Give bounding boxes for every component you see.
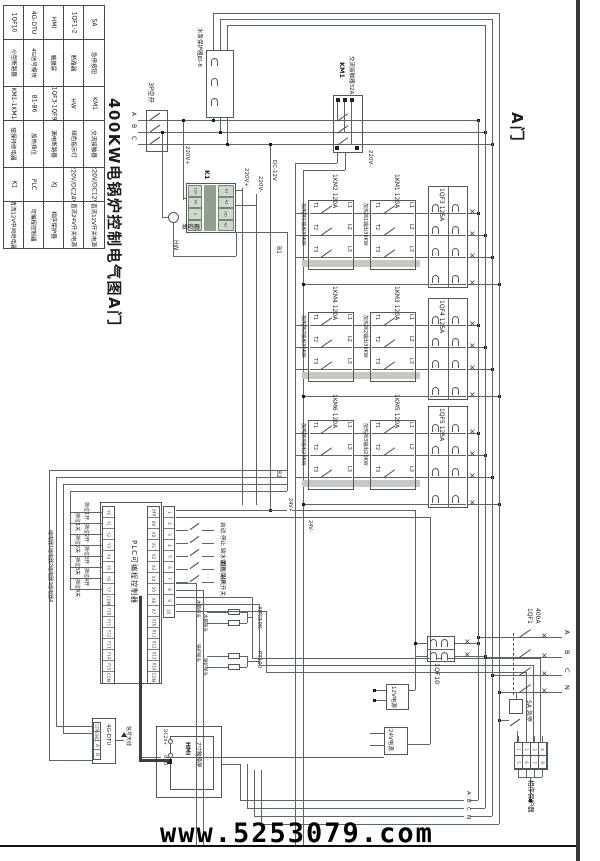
plc-output-label: 挡位4开 <box>83 568 88 586</box>
sheet-bottom-border <box>0 845 577 847</box>
breaker-pole-icon <box>452 468 459 476</box>
breaker-pole-icon <box>452 424 459 432</box>
xj-cell: 6 <box>523 756 531 769</box>
junction <box>302 283 305 286</box>
terminal-cell: Y12 <box>103 628 114 639</box>
wire <box>202 530 214 531</box>
wire <box>344 102 345 132</box>
breaker-pole-icon <box>432 338 439 346</box>
terminal-cell: X14 <box>148 661 159 672</box>
wire <box>310 369 352 370</box>
breaker-name: 1QF4 125A <box>438 300 444 333</box>
terminal <box>355 146 359 150</box>
breaker-pole-icon <box>452 387 459 395</box>
plc-right-terminal-strip: 24V0VX0X1X2X3X4X5X6X7X10X11X12X13X14COM <box>147 506 160 684</box>
wire <box>247 808 485 809</box>
terminal-label: T1 <box>312 314 317 320</box>
wire <box>176 611 266 612</box>
divider <box>427 649 455 650</box>
legend-cell: SA <box>84 6 104 40</box>
drawing-title: 400KW电锅炉控制电气图A门 <box>106 98 121 327</box>
wire <box>430 504 466 505</box>
wire <box>430 369 466 370</box>
terminal <box>336 98 340 102</box>
wire <box>56 726 92 727</box>
contactor-name: 1KM4 120A <box>331 286 337 320</box>
x-mark: × <box>469 208 476 216</box>
wire <box>207 612 228 613</box>
legend-cell: 急停按钮 <box>84 40 104 87</box>
terminal-cell: X0 <box>148 529 159 540</box>
x-mark: × <box>469 450 476 458</box>
legend-cell: 220V/DC24V <box>64 168 83 202</box>
legend-cell: 绿色指示灯 <box>64 121 83 168</box>
terminal-label: L2 <box>408 336 413 342</box>
x-mark: × <box>469 428 476 436</box>
k1-label: K1 <box>204 170 211 180</box>
plc-left-terminal-strip: Y0Y1Y2Y3Y4Y5Y6Y7COMY10Y11Y12Y13Y14Y15COM <box>102 506 115 684</box>
divider <box>448 298 449 400</box>
wire <box>372 369 414 370</box>
k1-pin-cell: A2 <box>218 197 234 209</box>
legend-cell: HMI <box>44 6 63 40</box>
heater-stage-label: 加热挡2输出30KW <box>300 315 305 358</box>
wire <box>213 13 214 50</box>
wire <box>207 656 228 657</box>
breaker-pole-icon <box>432 468 439 476</box>
terminal-cell: Y10 <box>103 606 114 617</box>
terminal-cell: COM <box>148 672 159 683</box>
breaker-pole-icon <box>211 58 218 66</box>
wire <box>242 188 243 505</box>
legend-column: 4G-DTU4G信号模块B1-B6加热挡位PLC可编程控制器 <box>24 6 44 248</box>
switch-glyph <box>190 523 200 530</box>
wire <box>227 25 485 26</box>
terminal-label: L2 <box>408 224 413 230</box>
terminal-label: T3 <box>312 246 317 252</box>
legend-cell: 直流12V开关电源 <box>84 202 104 248</box>
wire <box>240 656 247 657</box>
wire <box>138 132 485 133</box>
wire <box>240 800 478 801</box>
junction <box>212 119 215 122</box>
legend-cell: 小型断路器 <box>4 40 23 87</box>
terminal-label: T3 <box>312 358 317 364</box>
terminal-label: L3 <box>408 246 413 252</box>
legend-cell: 1QF1-2 <box>64 6 83 40</box>
x-mark: × <box>469 472 476 480</box>
terminal <box>350 98 354 102</box>
wire <box>351 102 352 144</box>
legend-column: HMI触摸屏1QF3-1QF9漏电断路器XJ相序保护器 <box>44 6 64 248</box>
junction <box>302 395 305 398</box>
bus-tag: N <box>465 815 471 819</box>
breaker-pole-icon <box>211 98 218 106</box>
wire <box>303 170 345 171</box>
terminal-cell: 0V <box>148 518 159 529</box>
wire-label: 220V- <box>367 150 373 166</box>
terminal-label: L3 <box>346 358 351 364</box>
legend-cell: 交流接触器 <box>84 121 104 168</box>
x-mark: × <box>469 342 476 350</box>
terminal-label: L1 <box>408 202 413 208</box>
terminal-cell: 24V <box>148 507 159 518</box>
wire <box>485 657 562 658</box>
legend-cell: 220V/DC12V <box>84 168 104 202</box>
wire <box>430 325 466 326</box>
km1-label: KM1 <box>339 62 346 78</box>
wire <box>372 235 414 236</box>
breaker-link-dashed <box>513 633 514 695</box>
k1-pin-cell: S <box>188 208 202 220</box>
breaker-pole-icon <box>432 446 439 454</box>
buzzer-icon <box>168 212 179 223</box>
wire <box>310 477 352 478</box>
heater-stage-label: 加热挡1输出30KW <box>300 203 305 246</box>
wire <box>416 235 428 236</box>
wire-label: 220V+ <box>184 146 190 165</box>
wire <box>176 530 188 531</box>
breaker-name: 1QF5 125A <box>438 408 444 441</box>
junction <box>373 699 376 702</box>
wire <box>259 604 260 665</box>
terminal-label: T2 <box>374 336 379 342</box>
terminal <box>335 146 339 150</box>
wire <box>202 556 214 557</box>
terminal-label: L1 <box>346 202 351 208</box>
wire <box>516 692 517 699</box>
wire <box>207 667 228 668</box>
x-mark: × <box>469 499 476 507</box>
terminal-label: T2 <box>374 444 379 450</box>
junction <box>373 689 376 692</box>
wire <box>176 510 415 511</box>
x-mark: × <box>469 252 476 260</box>
wire <box>345 153 346 170</box>
wire <box>303 284 428 285</box>
junction <box>269 143 272 146</box>
x-mark: × <box>469 279 476 287</box>
schematic-sheet: 1QF10小型断路器1KM1-1KM14磁保持继电器K1直流12V中间继电器 4… <box>0 0 600 861</box>
phase-label: A <box>564 630 571 634</box>
wire <box>372 213 414 214</box>
breaker-pole-icon <box>432 204 439 212</box>
heater-stage-label: 加热挡2输出30KW <box>362 315 367 358</box>
breaker-pole-icon <box>452 446 459 454</box>
wire-label: 220V+ <box>243 168 249 187</box>
terminal-label: T1 <box>312 202 317 208</box>
wire <box>542 770 543 777</box>
wire <box>354 257 370 258</box>
x-mark: × <box>469 320 476 328</box>
terminal-label: L2 <box>346 336 351 342</box>
wire <box>492 675 562 676</box>
terminal-cell: COM <box>103 672 114 683</box>
wire <box>430 455 466 456</box>
wire <box>236 232 287 233</box>
wire <box>430 284 466 285</box>
legend-cell: 4G信号模块 <box>24 40 43 87</box>
wire <box>116 740 124 741</box>
wire <box>430 396 466 397</box>
terminal-cell: X11 <box>148 628 159 639</box>
terminal-cell: 5 <box>164 551 174 562</box>
bus-tag: C <box>465 807 471 811</box>
wire <box>287 232 288 491</box>
switch-glyph <box>190 549 200 556</box>
wire <box>138 120 478 121</box>
wire <box>63 484 287 485</box>
legend-cell: K1 <box>4 168 23 202</box>
hmi-box <box>170 736 214 790</box>
terminal-cell: 1 <box>164 507 174 518</box>
wire-label: DC-12V <box>271 160 277 181</box>
wire <box>207 623 228 624</box>
legend-column: SA急停按钮KM1交流接触器220V/DC12V直流12V开关电源 <box>84 6 104 248</box>
wire <box>310 213 352 214</box>
wire <box>370 733 384 734</box>
terminal-cell: X2 <box>148 551 159 562</box>
switch-glyph <box>190 536 200 543</box>
wire <box>416 369 428 370</box>
wire <box>416 477 428 478</box>
sensor-icon <box>228 653 240 659</box>
wire <box>408 744 430 745</box>
terminal-label: L3 <box>346 466 351 472</box>
relay-label: 继电器4 <box>47 584 52 602</box>
wire <box>266 611 267 672</box>
x-mark: × <box>469 364 476 372</box>
wire <box>49 470 50 760</box>
wire <box>295 369 308 370</box>
terminal-label: T2 <box>374 224 379 230</box>
wire <box>303 504 428 505</box>
terminal-cell: 6 <box>164 562 174 573</box>
legend-cell: 1QF10 <box>4 6 23 40</box>
heater-stage-label: 加热挡1输出30KW <box>362 203 367 246</box>
door-label: A门 <box>509 112 524 143</box>
terminal-cell: X7 <box>148 606 159 617</box>
legend-cell: KM1 <box>84 87 104 121</box>
terminal-cell: 7 <box>164 573 174 584</box>
wire <box>176 604 259 605</box>
wire <box>176 597 252 598</box>
wire <box>518 770 519 777</box>
wire <box>534 770 535 777</box>
terminal-cell: GND <box>94 732 100 741</box>
plc-output-label: 挡位2关 <box>74 535 79 553</box>
breaker-3p-label: 3P空开 <box>148 82 155 103</box>
x-mark: × <box>469 391 476 399</box>
plc-output-label: 挡位3关 <box>74 557 79 575</box>
breaker-pole-icon <box>452 248 459 256</box>
plc-output-label: 挡位3开 <box>83 546 88 564</box>
wire <box>240 623 247 624</box>
terminal-label: L2 <box>408 444 413 450</box>
xj-cell: 1 <box>515 743 523 756</box>
k1-pin-cell: 12V <box>188 185 202 197</box>
contactor-name: 1KM6 120A <box>331 394 337 428</box>
wire <box>247 764 248 808</box>
wire <box>240 612 247 613</box>
main-breaker-rating: 400A <box>534 608 540 624</box>
wire <box>295 477 308 478</box>
contactor-name: 1KM5 120A <box>393 394 399 428</box>
wire <box>372 325 414 326</box>
contactor-name: 1KM1 120A <box>393 174 399 208</box>
antenna-label: 信号天线 <box>125 726 130 746</box>
k1-pin-column: A1A2NONC <box>218 185 234 231</box>
plc-output-label: 挡位1开 <box>83 502 88 520</box>
wire <box>220 19 221 50</box>
breaker-pole-icon <box>441 652 448 660</box>
bus-tag: B <box>465 799 471 803</box>
main-breaker-name: 1QF1 <box>526 608 532 624</box>
wire <box>430 235 466 236</box>
wire <box>138 144 492 145</box>
wire <box>310 257 352 258</box>
plc-output-label: 挡位1关 <box>74 513 79 531</box>
junction <box>182 119 185 122</box>
aux-terminal-strip: 12345678910 <box>163 506 175 618</box>
legend-cell: 可编程控制器 <box>24 202 43 248</box>
breaker-pole-icon <box>452 275 459 283</box>
dtu-label: 4G-DTU <box>105 724 111 745</box>
relay-label: 继电器2 <box>47 548 52 566</box>
legend-cell: 1QF3-1QF9 <box>44 87 63 121</box>
legend-cell: 漏电断路器 <box>44 121 63 168</box>
wire <box>372 347 414 348</box>
k1-pin-cell: 0V <box>188 197 202 209</box>
terminal-label: T1 <box>312 422 317 428</box>
wire <box>310 325 352 326</box>
wire <box>63 484 64 733</box>
wire <box>227 118 228 144</box>
k1-pin-cell: NO <box>218 208 234 220</box>
plc-input-label: 启动 <box>219 522 225 533</box>
breaker-pole-icon <box>432 248 439 256</box>
breaker-pole-icon <box>432 275 439 283</box>
wire <box>430 433 466 434</box>
x-mark: × <box>464 651 471 659</box>
xj-cell: 7 <box>531 756 539 769</box>
legend-cell: 1KM1-1KM14 <box>4 87 23 121</box>
wire <box>295 163 337 164</box>
legend-cell: HW <box>64 87 83 121</box>
xj-cell: 2 <box>523 743 531 756</box>
breaker-pole-icon <box>430 652 437 660</box>
wire <box>176 583 196 584</box>
terminal-label: L3 <box>408 466 413 472</box>
legend-cell: 直流12V中间继电器 <box>4 202 23 248</box>
breaker-pole-icon <box>430 639 437 647</box>
power-wire-thick <box>139 759 169 762</box>
wire <box>256 194 257 505</box>
legend-table: 1QF10小型断路器1KM1-1KM14磁保持继电器K1直流12V中间继电器 4… <box>3 5 105 249</box>
phase-label: A <box>130 112 136 116</box>
wire <box>240 764 241 800</box>
wire <box>203 590 204 845</box>
estop-box <box>509 699 523 714</box>
sensor-icon <box>228 620 240 626</box>
wire <box>254 816 492 817</box>
ps12-label: 12V电源 <box>390 686 396 708</box>
wire <box>202 569 214 570</box>
terminal-label: T2 <box>312 336 317 342</box>
wire <box>236 233 237 256</box>
sensor-icon <box>228 609 240 615</box>
relay-label: 继电器3 <box>47 566 52 584</box>
terminal-label: L1 <box>408 422 413 428</box>
wire <box>266 672 526 673</box>
hmi-pin <box>168 753 173 758</box>
plc-output-label: 挡位2开 <box>83 524 88 542</box>
wire <box>176 556 188 557</box>
heater-stage-label: 加热挡3输出20KW <box>362 423 367 466</box>
terminal-cell: Y14 <box>103 650 114 661</box>
contactor-name: 1KM3 120A <box>393 286 399 320</box>
terminal-cell: A <box>94 741 100 750</box>
wire <box>56 477 57 726</box>
switch-glyph <box>190 575 200 582</box>
breaker-pole-icon <box>211 78 218 86</box>
legend-column: 1QF10小型断路器1KM1-1KM14磁保持继电器K1直流12V中间继电器 <box>4 6 24 248</box>
xj-terminal-block: 12345678 <box>514 742 548 770</box>
divider <box>448 406 449 508</box>
junction <box>302 503 305 506</box>
wire <box>310 347 352 348</box>
xj-label: 相序保护器 <box>528 780 535 813</box>
terminal-cell: Y3 <box>103 540 114 551</box>
wire <box>295 257 308 258</box>
junction <box>161 131 164 134</box>
terminal <box>343 98 347 102</box>
wire <box>236 205 256 206</box>
hmi-pin <box>168 739 173 744</box>
wire <box>337 102 338 120</box>
legend-cell: PLC <box>24 168 43 202</box>
wire-label: 220V- <box>257 176 263 192</box>
bus-wire <box>485 25 486 808</box>
wire <box>430 347 466 348</box>
wire <box>49 760 92 761</box>
breaker-pole-icon <box>432 424 439 432</box>
terminal-cell: X13 <box>148 650 159 661</box>
wire <box>430 213 466 214</box>
x-mark: × <box>469 230 476 238</box>
wire <box>416 455 428 456</box>
junction <box>226 143 229 146</box>
bus-wire <box>492 19 493 816</box>
wire <box>310 235 352 236</box>
k1-coil-block <box>204 185 216 231</box>
plc-input-label: 停止 <box>219 535 225 546</box>
xj-cell: 4 <box>539 743 547 756</box>
wire <box>303 396 428 397</box>
buzzer-label: 蜂鸣器 <box>182 225 200 231</box>
phase-label: C <box>564 668 571 673</box>
wire <box>213 13 499 14</box>
bus-wire <box>499 13 500 824</box>
xj-cell: 8 <box>539 756 547 769</box>
phase-label: N <box>564 685 571 690</box>
wire <box>176 517 430 518</box>
wire <box>70 491 287 492</box>
pump-protector-label: 水泵保护器JD-8 <box>196 28 202 67</box>
terminal-cell: X3 <box>148 562 159 573</box>
contactor-name: 1KM2 120A <box>331 174 337 208</box>
wire <box>196 583 197 845</box>
